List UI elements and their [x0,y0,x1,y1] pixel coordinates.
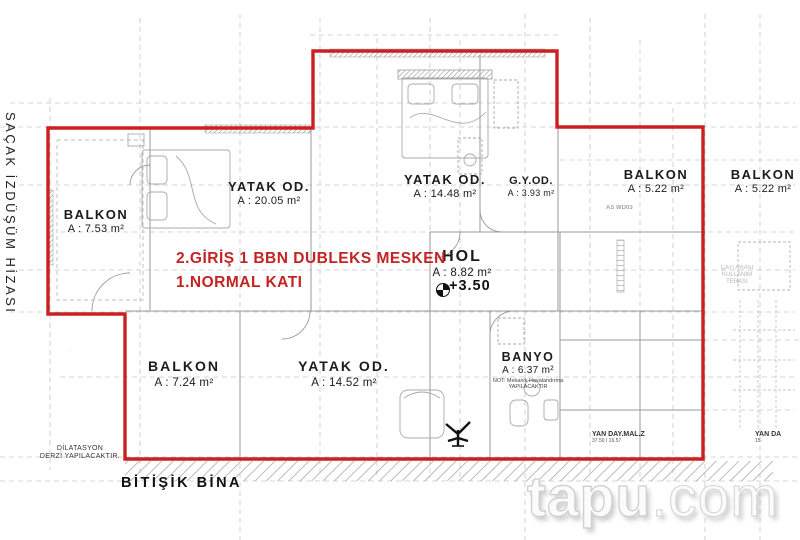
yan-day-left-sub: 37.50 / 16.57 [592,438,645,445]
room-label-balkon-outside: BALKON A : 5.22 m² [731,167,796,195]
room-name: BALKON [64,207,129,222]
room-name: YATAK OD. [298,358,390,374]
yan-day-right-sub: 15. [755,438,781,445]
room-label-gy-od: G.Y.OD. A : 3.93 m² [508,175,555,198]
room-area: A : 5.22 m² [731,183,796,195]
room-area: A : 14.48 m² [404,188,486,200]
room-label-yatak-od-bottom: YATAK OD. A : 14.52 m² [298,358,390,389]
room-area: A : 7.24 m² [148,377,220,389]
plant-icon [446,422,470,446]
room-name: G.Y.OD. [508,175,555,187]
yan-day-left-text: YAN DAY.MAL.Z [592,431,645,438]
elevation-label: +3.50 [433,278,491,294]
saçak-izdusum-label: SAÇAK İZDÜŞÜM HİZASI [3,112,18,314]
yan-day-right-text: YAN DA [755,431,781,438]
room-name: BALKON [731,167,796,182]
watermark-part2: .com [651,465,779,529]
room-area: A : 3.93 m² [508,188,555,198]
dilatasyon-note: DİLATASYON DERZİ YAPILACAKTIR. [40,445,120,460]
dilatasyon-line1: DİLATASYON [40,445,120,453]
attic-note-line: TERASI [721,279,754,286]
attic-note-line: KULLANIM [721,272,754,279]
room-name: YATAK OD. [228,179,310,194]
room-label-balkon-top-right: BALKON A : 5.22 m² [624,167,689,195]
room-label-yatak-od-top: YATAK OD. A : 14.48 m² [404,172,486,200]
as-note: AS WD03 [606,205,633,212]
dilatasyon-line2: DERZİ YAPILACAKTIR. [40,453,120,461]
room-area: A : 14.52 m² [298,377,390,389]
watermark-part1: tapu [527,465,651,529]
elevation-value: +3.50 [449,278,491,294]
room-label-yatak-od-left: YATAK OD. A : 20.05 m² [228,179,310,207]
room-name: BALKON [148,358,220,374]
attic-note: ÇATI ARASI KULLANIM TERASI [721,265,754,286]
yan-day-note-right: YAN DA 15. [755,431,781,445]
room-area: A : 7.53 m² [64,223,129,235]
room-name: BANYO [493,350,563,364]
tapu-watermark: tapu.com [527,464,779,530]
room-area: A : 6.37 m² [493,365,563,376]
attic-note-line: ÇATI ARASI [721,265,754,272]
room-name: YATAK OD. [404,172,486,187]
annotation-line2: 1.NORMAL KATI [176,274,302,292]
room-area: A : 5.22 m² [624,183,689,195]
floor-plan-canvas: SAÇAK İZDÜŞÜM HİZASI BALKON A : 7.53 m² … [0,0,800,540]
annotation-line1: 2.GİRİŞ 1 BBN DUBLEKS MESKEN [176,250,446,268]
banyo-note-line2: YAPILACAKTIR [493,384,563,390]
room-name: BALKON [624,167,689,182]
adjacent-building-label: BİTİŞİK BİNA [121,475,242,491]
room-label-balkon-left: BALKON A : 7.53 m² [64,207,129,235]
yan-day-note-left: YAN DAY.MAL.Z 37.50 / 16.57 [592,431,645,445]
room-area: A : 20.05 m² [228,195,310,207]
room-label-banyo: BANYO A : 6.37 m² NOT: Mekanik Havalandı… [493,350,563,390]
room-label-balkon-bottom: BALKON A : 7.24 m² [148,358,220,389]
